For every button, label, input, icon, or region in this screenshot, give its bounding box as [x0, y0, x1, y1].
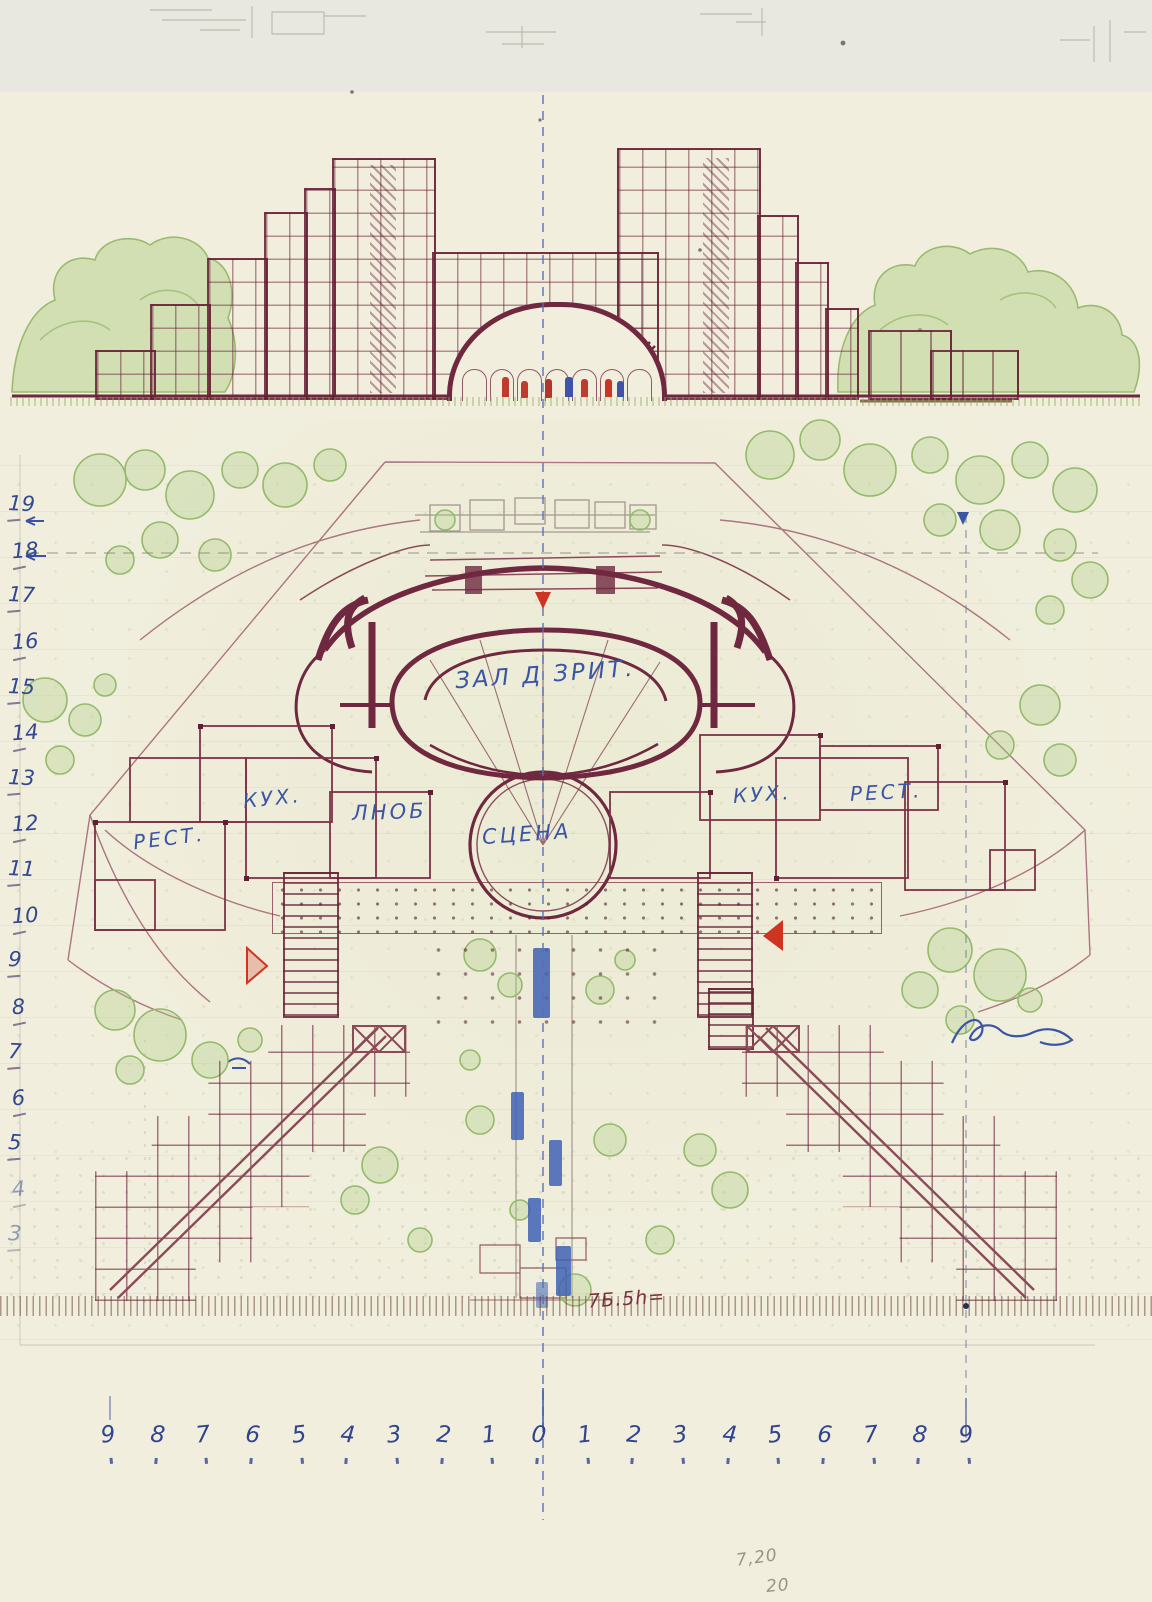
sketch-page: ЗАЛ Д ЗРИТ. СЦЕНА КУХ. ЛНОБ РЕСТ. КУХ. Р… [0, 0, 1152, 1602]
left-axis-number: 10 [11, 903, 53, 934]
bottom-axis-number: 5 [761, 1423, 791, 1465]
bottom-axis-number: 6 [237, 1423, 266, 1465]
left-axis-number: 4 [11, 1177, 53, 1208]
bottom-axis-number: 9 [94, 1423, 124, 1465]
restaurant-right-label: РЕСТ. [849, 778, 922, 806]
left-axis-number: 16 [11, 630, 53, 661]
bottom-axis-number: 4 [714, 1423, 743, 1465]
blue-arrow-down-icon [957, 512, 969, 525]
left-axis-number: 8 [11, 995, 53, 1026]
left-axis-number: 15 [7, 675, 48, 705]
corner-sheet-number: 20 [765, 1575, 790, 1597]
bottom-axis-number: 1 [571, 1423, 601, 1465]
left-axis-numbers: 191817161514131211109876543 [8, 494, 48, 1252]
bottom-axis-numbers: 9876543210123456789 [96, 1424, 980, 1464]
bottom-axis-number: 7 [189, 1423, 219, 1465]
bottom-axis-number: 4 [333, 1423, 362, 1465]
red-triangle-right-icon [247, 948, 267, 983]
left-axis-number: 14 [11, 721, 53, 752]
left-axis-number: 11 [7, 858, 48, 888]
bottom-axis-number: 9 [952, 1423, 982, 1465]
bottom-axis-number: 0 [523, 1423, 552, 1465]
bottom-axis-number: 8 [142, 1423, 171, 1465]
left-axis-number: 9 [7, 949, 48, 979]
bottom-axis-number: 7 [856, 1423, 886, 1465]
left-axis-number: 13 [7, 767, 48, 797]
bottom-axis-number: 2 [428, 1423, 457, 1465]
left-axis-number: 5 [7, 1132, 48, 1162]
service-label: ЛНОБ [352, 799, 427, 826]
left-axis-number: 6 [11, 1086, 53, 1117]
bottom-axis-number: 1 [475, 1423, 505, 1465]
bottom-axis-number: 8 [904, 1423, 933, 1465]
terrace-ramps [110, 1026, 1034, 1298]
red-triangle-down-icon [535, 592, 551, 609]
bottom-axis-number: 5 [285, 1423, 315, 1465]
bottom-axis-number: 3 [666, 1423, 696, 1465]
axis-dot [963, 1303, 969, 1309]
left-axis-number: 18 [11, 538, 53, 569]
overlay-marks [0, 0, 1152, 1602]
left-axis-number: 12 [11, 812, 53, 843]
bottom-axis-number: 6 [809, 1423, 838, 1465]
left-axis-number: 17 [7, 584, 48, 614]
red-triangle-left-icon [763, 920, 783, 951]
bottom-axis-number: 3 [380, 1423, 410, 1465]
left-axis-number: 19 [7, 493, 48, 523]
kitchen-right-label: КУХ. [732, 780, 792, 808]
left-axis-number: 3 [7, 1223, 48, 1253]
left-axis-number: 7 [7, 1040, 48, 1070]
bottom-axis-number: 2 [619, 1423, 648, 1465]
